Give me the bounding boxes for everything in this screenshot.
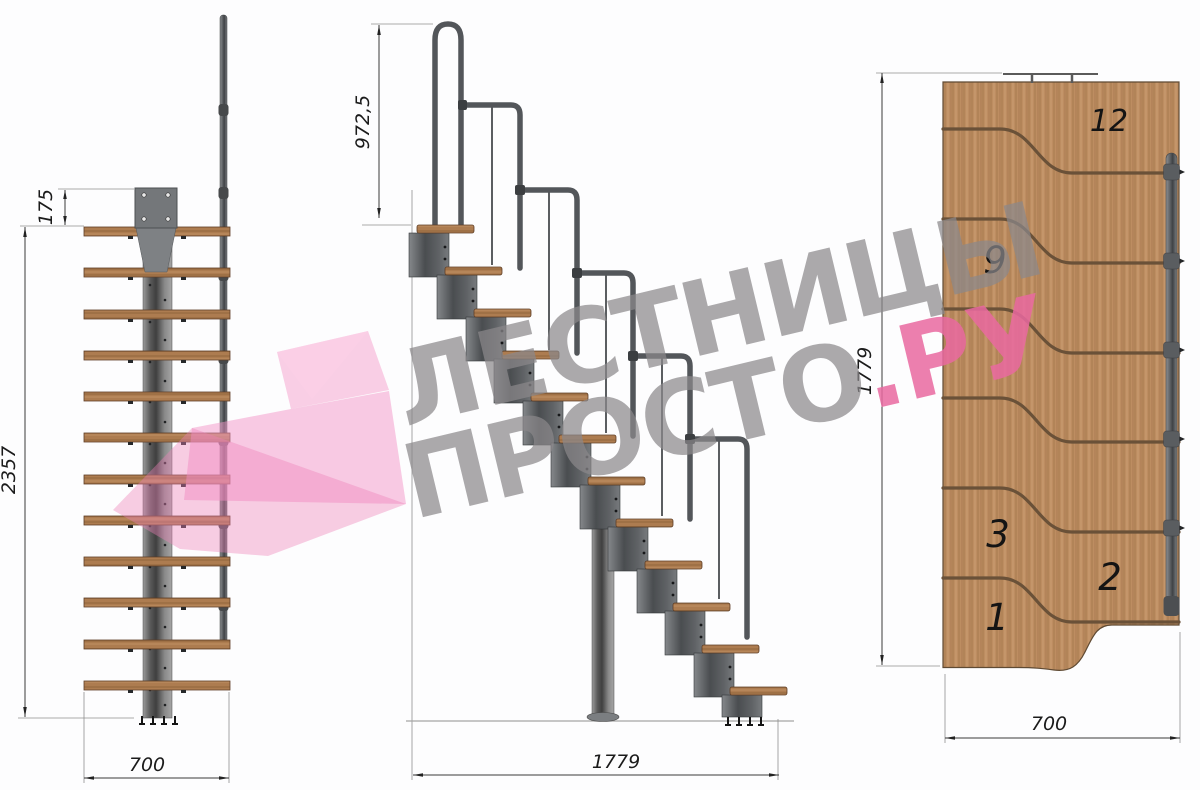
side-tread [645,561,702,569]
drawing-canvas: 175 2357 700 [0,0,1200,790]
stair-module [637,569,677,613]
front-tread [84,681,230,690]
side-tread [616,519,673,527]
side-tread [531,393,588,401]
front-tread [84,475,230,484]
side-tread [474,309,531,317]
side-tread [502,351,559,359]
side-dim-total-length: 1779 [413,719,779,780]
front-tread [84,516,230,525]
dim-label-700-plan: 700 [1031,713,1067,735]
stair-module [409,233,449,277]
plan-handrail [1164,153,1186,616]
stair-module [466,317,506,361]
side-tread [559,435,616,443]
step-number-2: 2 [1098,556,1122,599]
side-dim-handrail-height: 972,5 [352,24,433,225]
dim-label-2357: 2357 [0,446,20,494]
front-tread [84,310,230,319]
stair-module [523,401,563,445]
front-tread [84,557,230,566]
dim-label-972-5: 972,5 [352,95,374,149]
stair-module [694,653,734,697]
side-column-foot [587,713,619,722]
front-wall-plate [135,188,177,228]
side-modules [409,233,762,717]
dim-label-1779-side: 1779 [592,751,640,773]
handrail-loop [435,24,461,228]
side-view: 972,5 1779 [352,24,794,780]
front-tread [84,433,230,442]
front-tread [84,598,230,607]
stair-module [608,527,648,571]
stair-module [665,611,705,655]
staircase-drawing: 175 2357 700 [0,0,1200,790]
stair-module [494,359,534,403]
front-tread [84,640,230,649]
front-dim-plate-offset: 175 [20,189,134,226]
plan-handrail-tube [1166,153,1177,609]
side-tread [673,603,730,611]
dim-label-1779-plan: 1779 [854,347,876,395]
side-tread [588,477,645,485]
stair-module [722,695,762,717]
step-number-12: 12 [1090,104,1128,139]
dim-label-175: 175 [35,189,57,225]
side-tread [445,267,502,275]
stair-module [551,443,591,487]
dim-label-700-front: 700 [129,754,165,776]
step-number-1: 1 [985,596,1009,639]
front-view: 175 2357 700 [0,15,230,783]
front-tread [84,392,230,401]
side-tread [417,225,474,233]
side-tread [702,645,759,653]
stair-module [437,275,477,319]
step-number-9: 9 [983,239,1007,282]
stair-module [580,485,620,529]
step-number-3: 3 [986,513,1010,556]
plan-view: 12 9 3 2 1 1779 700 [854,73,1185,743]
front-tread [84,351,230,360]
side-tread [730,687,787,695]
